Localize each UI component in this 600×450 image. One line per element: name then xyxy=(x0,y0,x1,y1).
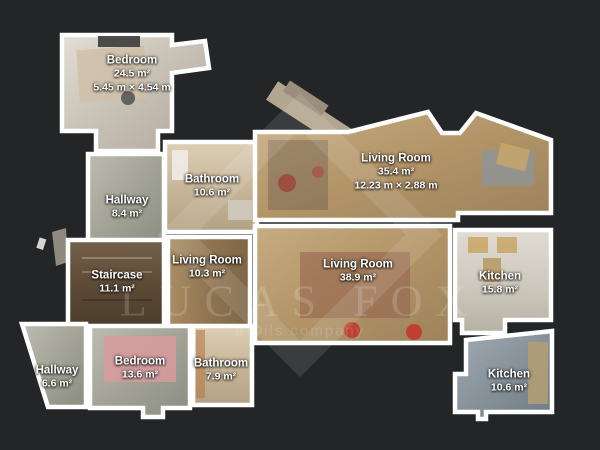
room-shape-staircase xyxy=(68,240,164,331)
floor-plan-canvas xyxy=(0,0,600,450)
scan-debris-left xyxy=(36,228,68,266)
floor-plan: LUCAS FOX a Dils company Bedroom 24.5 m²… xyxy=(0,0,600,450)
room-shape-hallway-upper xyxy=(88,154,164,249)
room-shape-hallway-lower xyxy=(22,324,86,407)
